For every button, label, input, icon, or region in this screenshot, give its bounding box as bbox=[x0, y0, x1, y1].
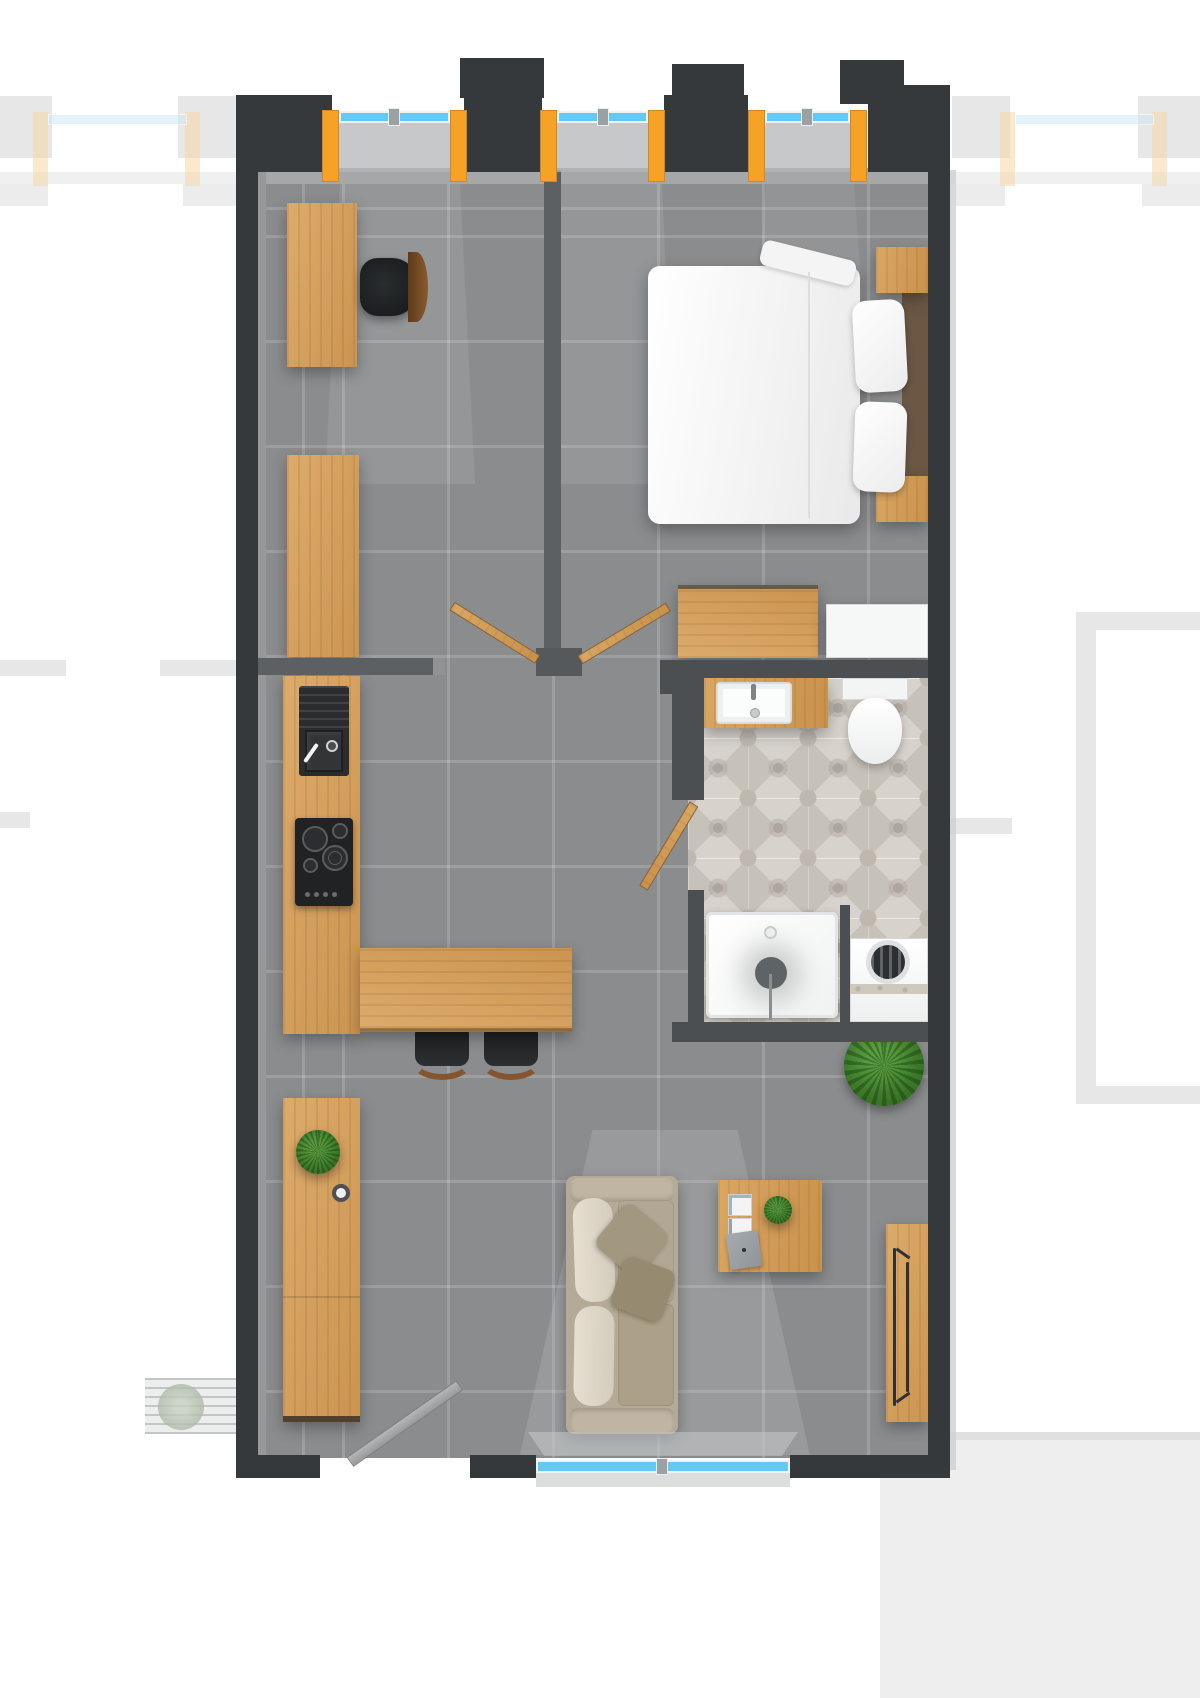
white-wardrobe bbox=[826, 604, 928, 658]
bathroom-wall-left-upper bbox=[672, 678, 704, 800]
magazines bbox=[728, 1194, 752, 1216]
bottom-window-reveal bbox=[528, 1432, 798, 1456]
kitchen-half-wall-cap bbox=[433, 658, 445, 675]
window-reveal bbox=[332, 122, 457, 172]
bed-duvet bbox=[648, 266, 860, 524]
neighbor-window-post bbox=[185, 112, 200, 186]
bathroom-wall-left-lower bbox=[688, 890, 704, 1042]
window-frame-post bbox=[540, 110, 557, 182]
cooktop-burner bbox=[303, 858, 318, 873]
neighbor-wall bbox=[1096, 1086, 1200, 1104]
wall-inner-face bbox=[258, 170, 266, 1455]
sideboard-plant bbox=[296, 1130, 340, 1174]
partition-wall-center bbox=[544, 170, 561, 650]
shower-handle bbox=[769, 974, 772, 1020]
bed-pillow bbox=[852, 401, 907, 493]
wall-bottom-segment bbox=[470, 1455, 536, 1478]
wall-bottom-segment bbox=[236, 1455, 320, 1478]
neighbor-window-post bbox=[1152, 112, 1167, 186]
floor-plan-canvas bbox=[0, 0, 1200, 1698]
partition-door-post bbox=[536, 648, 582, 676]
neighbor-wall bbox=[1142, 184, 1200, 206]
neighbor-wall bbox=[955, 184, 1005, 206]
window-frame-post bbox=[450, 110, 467, 182]
wall-right-outer-line bbox=[950, 170, 956, 1470]
neighbor-wall bbox=[950, 818, 1012, 834]
walkway-plant bbox=[158, 1384, 204, 1430]
window-mullion bbox=[597, 108, 609, 126]
console-frame bbox=[906, 1262, 909, 1392]
neighbor-window-post bbox=[33, 112, 48, 186]
window-frame-post bbox=[748, 110, 765, 182]
neighbor-wall bbox=[1138, 96, 1200, 158]
bottom-window-mullion bbox=[656, 1458, 668, 1475]
sideboard-seam bbox=[283, 1296, 360, 1298]
neighbor-window-post bbox=[1000, 112, 1015, 186]
toilet bbox=[848, 698, 902, 764]
breakfast-bar bbox=[360, 948, 572, 1032]
window-frame-post bbox=[648, 110, 665, 182]
washer-door bbox=[871, 945, 905, 979]
window-reveal bbox=[760, 122, 858, 172]
bed-duvet-seam bbox=[808, 272, 810, 518]
window-mullion bbox=[388, 108, 400, 126]
sofa-seat-cushion bbox=[618, 1304, 674, 1406]
wall-top-pier bbox=[840, 60, 904, 104]
nightstand bbox=[876, 247, 928, 293]
dresser bbox=[678, 585, 818, 658]
neighbor-wall bbox=[0, 812, 30, 828]
wall-top-segment bbox=[664, 95, 748, 172]
wall-top-segment bbox=[236, 95, 332, 172]
wall-top-pier bbox=[672, 64, 744, 98]
sink-drain bbox=[750, 708, 760, 718]
window-frame-post bbox=[322, 110, 339, 182]
cooktop-burner bbox=[302, 826, 328, 852]
coffee-table-plant bbox=[764, 1196, 792, 1224]
neighbor-wall bbox=[0, 660, 66, 676]
wall-bottom-segment bbox=[790, 1455, 950, 1478]
wall-top-segment bbox=[464, 95, 542, 172]
cooktop-controls bbox=[303, 892, 339, 897]
tall-cabinet bbox=[287, 455, 359, 657]
bedroom-bathroom-wall bbox=[660, 660, 928, 678]
console-frame bbox=[893, 1248, 896, 1406]
window-frame-post bbox=[850, 110, 867, 182]
toilet-tank bbox=[842, 678, 908, 700]
window-reveal bbox=[550, 122, 656, 172]
wall-right bbox=[928, 85, 950, 1478]
neighbor-window-glass bbox=[48, 114, 187, 125]
bathroom-wall-bottom bbox=[672, 1022, 928, 1042]
sideboard-cup bbox=[332, 1184, 350, 1202]
cooktop-burner bbox=[332, 823, 348, 839]
sink-faucet bbox=[751, 684, 756, 700]
bar-stool-footrest bbox=[411, 1042, 473, 1080]
neighbor-wall bbox=[183, 184, 236, 206]
sofa-armrest bbox=[570, 1408, 674, 1432]
bed-pillow bbox=[852, 299, 909, 394]
neighbor-window-glass bbox=[1015, 114, 1154, 125]
kitchen-half-wall bbox=[258, 658, 445, 675]
neighbor-wall bbox=[160, 660, 236, 676]
desk bbox=[287, 203, 357, 367]
window-mullion bbox=[801, 108, 813, 126]
neighbor-wall bbox=[1096, 612, 1200, 630]
wall-left bbox=[236, 95, 258, 1478]
neighbor-wall bbox=[1076, 612, 1096, 1104]
sofa-back-cushion bbox=[573, 1306, 615, 1407]
neighbor-wall bbox=[0, 184, 48, 206]
cooktop-burner bbox=[322, 845, 348, 871]
wall-top-pier bbox=[460, 58, 544, 98]
kitchen-faucet-base bbox=[326, 740, 338, 752]
bar-stool-footrest bbox=[480, 1042, 542, 1080]
shower-washer-divider bbox=[840, 905, 850, 1022]
bottom-window-outer-sill bbox=[536, 1473, 790, 1487]
shower-drain-cap bbox=[764, 926, 777, 939]
washer-detail-strip bbox=[850, 984, 928, 994]
laptop-logo bbox=[742, 1248, 746, 1252]
